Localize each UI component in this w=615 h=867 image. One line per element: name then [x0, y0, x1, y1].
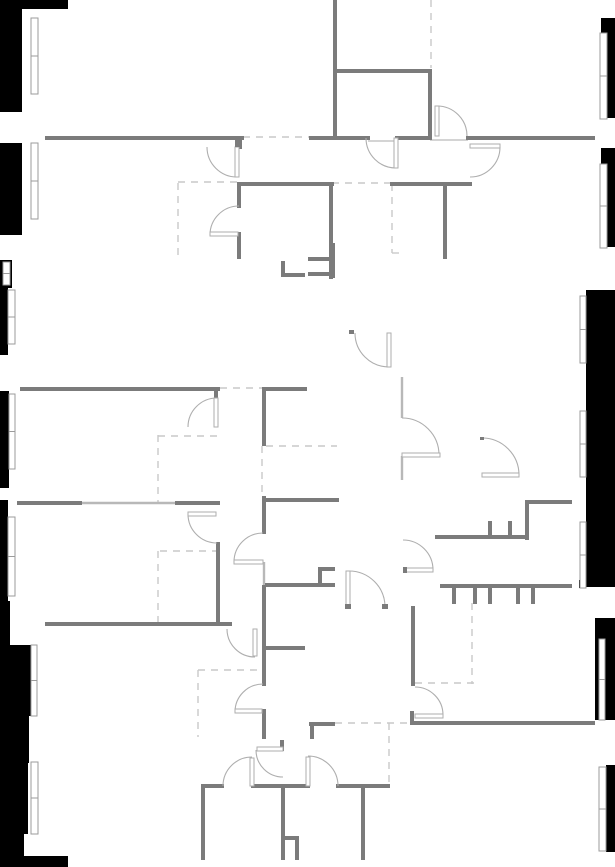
outside-mask	[0, 288, 8, 355]
door-leaf	[214, 398, 218, 427]
door-leaf	[234, 560, 263, 564]
door-frame-stub	[480, 437, 484, 440]
door-leaf	[253, 629, 257, 656]
door-leaf	[210, 232, 238, 236]
door-frame-stub	[382, 604, 388, 609]
door-leaf	[402, 453, 440, 457]
floorplan-viewport	[0, 0, 615, 867]
door-leaf	[257, 747, 283, 751]
outside-mask	[586, 290, 615, 587]
outside-mask	[0, 143, 22, 235]
door-frame-stub	[403, 567, 407, 573]
outside-mask	[0, 601, 10, 645]
plan-background	[0, 0, 615, 867]
outside-mask	[0, 645, 31, 716]
door-leaf	[394, 138, 398, 168]
door-leaf	[387, 333, 391, 367]
door-leaf	[235, 709, 262, 713]
floorplan-svg	[0, 0, 615, 867]
outside-mask	[0, 763, 28, 834]
door-leaf	[404, 568, 433, 572]
door-leaf	[188, 512, 216, 516]
door-leaf	[306, 757, 310, 786]
door-leaf	[250, 758, 254, 786]
door-frame-stub	[349, 330, 354, 334]
outside-mask	[0, 856, 68, 867]
door-leaf	[346, 571, 350, 607]
door-leaf	[415, 714, 443, 718]
door-frame-stub	[345, 604, 351, 609]
outside-mask	[0, 500, 8, 601]
door-leaf	[482, 473, 519, 477]
outside-mask	[0, 0, 22, 112]
outside-mask	[0, 716, 29, 763]
door-frame-stub	[235, 137, 240, 147]
outside-mask	[22, 0, 68, 9]
outside-mask	[606, 765, 615, 852]
door-leaf	[470, 144, 500, 148]
door-leaf	[235, 147, 239, 177]
door-leaf	[435, 106, 439, 136]
outside-mask	[0, 391, 9, 488]
